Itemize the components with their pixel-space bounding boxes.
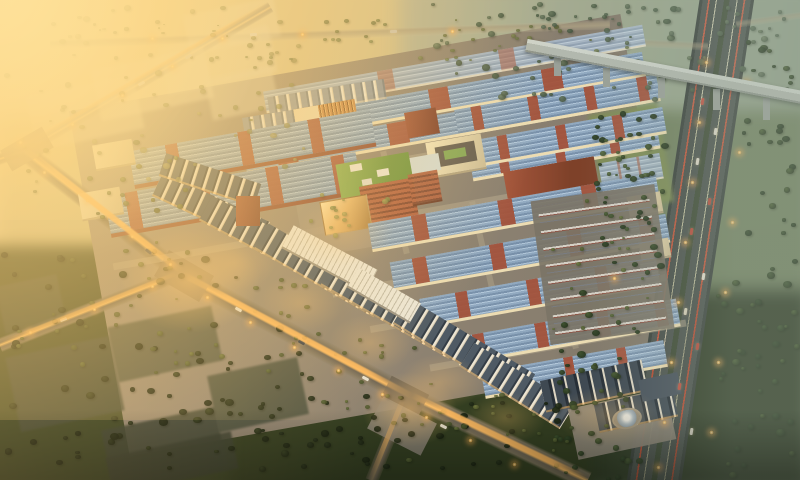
warm-tint bbox=[0, 0, 800, 480]
scene bbox=[0, 0, 800, 480]
